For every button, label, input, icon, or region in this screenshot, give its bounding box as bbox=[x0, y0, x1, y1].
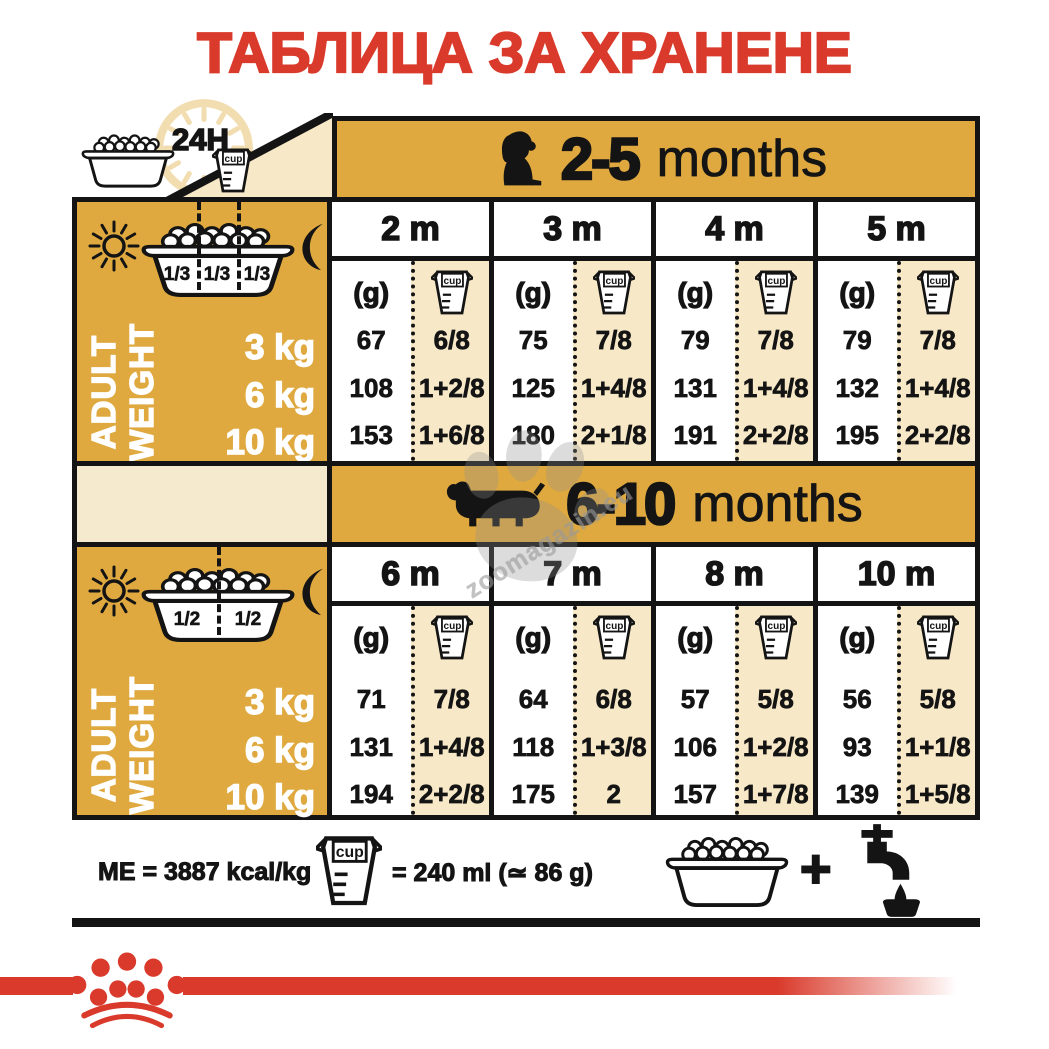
grams-value: 131 bbox=[332, 732, 411, 763]
cup-subcolumn: cup 7/8 1+4/8 2+2/8 bbox=[897, 261, 976, 461]
svg-text:cup: cup bbox=[605, 276, 623, 287]
cup-icon: cup bbox=[593, 612, 635, 662]
cup-subcolumn: cup 5/8 1+1/8 1+5/8 bbox=[897, 606, 976, 815]
grams-value: 106 bbox=[656, 732, 735, 763]
crown-logo bbox=[64, 944, 190, 1030]
cup-value: 1+4/8 bbox=[577, 373, 652, 404]
section2-spacer-cell bbox=[72, 461, 332, 547]
cup-value: 5/8 bbox=[739, 684, 814, 715]
cup-value: 6/8 bbox=[415, 325, 490, 356]
cup-value: 1+4/8 bbox=[901, 373, 976, 404]
grams-value: 125 bbox=[494, 373, 573, 404]
cup-value: 1+5/8 bbox=[901, 779, 976, 810]
cup-icon: cup bbox=[316, 830, 382, 910]
puppy-icon bbox=[485, 128, 543, 190]
grams-value: 180 bbox=[494, 420, 573, 451]
cup-subcolumn: cup 6/8 1+3/8 2 bbox=[573, 606, 652, 815]
portion-divider-line bbox=[217, 547, 221, 635]
months-word: months bbox=[657, 129, 828, 189]
grams-subcolumn: (g) 56 93 139 bbox=[818, 606, 897, 815]
grams-value: 75 bbox=[494, 325, 573, 356]
svg-text:cup: cup bbox=[336, 844, 364, 861]
grams-label: (g) bbox=[332, 622, 411, 654]
grams-value: 57 bbox=[656, 684, 735, 715]
dachshund-icon bbox=[444, 479, 548, 529]
cup-subcolumn: cup 7/8 1+4/8 2+2/8 bbox=[735, 261, 814, 461]
weight-row-label: 3 kg bbox=[195, 683, 315, 723]
grams-value: 64 bbox=[494, 684, 573, 715]
page-title: ТАБЛИЦА ЗА ХРАНЕНЕ bbox=[0, 20, 1049, 86]
cup-value: 1+3/8 bbox=[577, 732, 652, 763]
weight-row-label: 10 kg bbox=[195, 778, 315, 818]
metabolizable-energy-text: ME = 3887 kcal/kg bbox=[98, 858, 311, 887]
grams-label: (g) bbox=[818, 622, 897, 654]
grams-value: 139 bbox=[818, 779, 897, 810]
svg-text:cup: cup bbox=[929, 621, 947, 632]
grams-subcolumn: (g) 64 118 175 bbox=[494, 606, 573, 815]
cup-value: 2+2/8 bbox=[901, 420, 976, 451]
grams-value: 175 bbox=[494, 779, 573, 810]
cup-icon: cup bbox=[755, 612, 797, 662]
month-column-7m: 7 m (g) 64 118 175 cup 6/8 1+3/8 2 bbox=[489, 547, 651, 815]
portion-bowl-icon bbox=[139, 222, 297, 298]
month-column-4m: 4 m (g) 79 131 191 cup 7/8 1+4/8 2+2/8 bbox=[651, 202, 813, 461]
cup-value: 6/8 bbox=[577, 684, 652, 715]
bowl-fraction: 1/3 bbox=[237, 264, 277, 286]
grams-value: 195 bbox=[818, 420, 897, 451]
month-header: 7 m bbox=[494, 547, 651, 606]
cup-icon: cup bbox=[593, 267, 635, 317]
cup-value: 7/8 bbox=[739, 325, 814, 356]
grams-value: 71 bbox=[332, 684, 411, 715]
grams-subcolumn: (g) 57 106 157 bbox=[656, 606, 735, 815]
grams-value: 194 bbox=[332, 779, 411, 810]
grams-subcolumn: (g) 79 132 195 bbox=[818, 261, 897, 461]
grams-value: 118 bbox=[494, 732, 573, 763]
cup-icon: cup bbox=[431, 267, 473, 317]
brand-band-left bbox=[0, 977, 73, 995]
grams-label: (g) bbox=[332, 277, 411, 309]
section1-header: 2-5 months bbox=[332, 116, 980, 202]
svg-text:cup: cup bbox=[929, 276, 947, 287]
weight-row-label: 6 kg bbox=[195, 731, 315, 771]
grams-subcolumn: (g) 71 131 194 bbox=[332, 606, 411, 815]
grams-label: (g) bbox=[494, 277, 573, 309]
grams-value: 191 bbox=[656, 420, 735, 451]
month-header: 4 m bbox=[656, 202, 813, 261]
grams-label: (g) bbox=[818, 277, 897, 309]
cup-icon: cup bbox=[755, 267, 797, 317]
bowl-fraction: 1/3 bbox=[197, 264, 237, 286]
bowl-fraction: 1/3 bbox=[157, 264, 197, 286]
grams-subcolumn: (g) 67 108 153 bbox=[332, 261, 411, 461]
svg-text:cup: cup bbox=[767, 276, 785, 287]
grams-value: 108 bbox=[332, 373, 411, 404]
svg-text:cup: cup bbox=[605, 621, 623, 632]
section2-header: 6-10 months bbox=[332, 461, 980, 547]
month-column-8m: 8 m (g) 57 106 157 cup 5/8 1+2/8 1+7/8 bbox=[651, 547, 813, 815]
age-range: 6-10 bbox=[566, 471, 674, 538]
footer-row: ME = 3887 kcal/kg cup = 240 ml (≃ 86 g) … bbox=[72, 820, 980, 927]
cup-value: 2+2/8 bbox=[415, 779, 490, 810]
bowl-fraction: 1/2 bbox=[162, 609, 212, 631]
months-word: months bbox=[692, 474, 863, 534]
adult-weight-label: ADULTWEIGHT bbox=[85, 660, 165, 830]
month-column-3m: 3 m (g) 75 125 180 cup 7/8 1+4/8 2+1/8 bbox=[489, 202, 651, 461]
grams-value: 132 bbox=[818, 373, 897, 404]
grams-subcolumn: (g) 75 125 180 bbox=[494, 261, 573, 461]
grams-value: 131 bbox=[656, 373, 735, 404]
kibble-bowl-icon bbox=[80, 126, 176, 196]
svg-text:cup: cup bbox=[225, 154, 243, 165]
month-column-10m: 10 m (g) 56 93 139 cup 5/8 1+1/8 1+5/8 bbox=[813, 547, 975, 815]
grams-value: 93 bbox=[818, 732, 897, 763]
cup-value: 7/8 bbox=[577, 325, 652, 356]
cup-value: 1+7/8 bbox=[739, 779, 814, 810]
grams-value: 67 bbox=[332, 325, 411, 356]
cup-value: 1+1/8 bbox=[901, 732, 976, 763]
month-column-6m: 6 m (g) 71 131 194 cup 7/8 1+4/8 2+2/8 bbox=[332, 547, 489, 815]
grams-subcolumn: (g) 79 131 191 bbox=[656, 261, 735, 461]
grams-value: 79 bbox=[818, 325, 897, 356]
grams-value: 79 bbox=[656, 325, 735, 356]
cup-value: 5/8 bbox=[901, 684, 976, 715]
adult-weight-label: ADULTWEIGHT bbox=[85, 307, 165, 477]
month-header: 8 m bbox=[656, 547, 813, 606]
grams-value: 157 bbox=[656, 779, 735, 810]
svg-text:cup: cup bbox=[767, 621, 785, 632]
kibble-bowl-icon bbox=[660, 836, 794, 908]
water-tap-icon bbox=[838, 824, 920, 918]
cup-value: 1+2/8 bbox=[739, 732, 814, 763]
month-header: 5 m bbox=[818, 202, 975, 261]
cup-value: 7/8 bbox=[415, 684, 490, 715]
cup-subcolumn: cup 5/8 1+2/8 1+7/8 bbox=[735, 606, 814, 815]
weight-row-label: 10 kg bbox=[195, 423, 315, 463]
cup-icon: cup bbox=[917, 267, 959, 317]
grams-value: 153 bbox=[332, 420, 411, 451]
section2-left-panel: 1/2 1/2 ADULTWEIGHT 3 kg 6 kg 10 kg bbox=[72, 542, 332, 820]
cup-value: 1+2/8 bbox=[415, 373, 490, 404]
month-header: 2 m bbox=[332, 202, 489, 261]
month-column-5m: 5 m (g) 79 132 195 cup 7/8 1+4/8 2+2/8 bbox=[813, 202, 975, 461]
plus-sign: + bbox=[800, 838, 832, 900]
cup-subcolumn: cup 7/8 1+4/8 2+1/8 bbox=[573, 261, 652, 461]
cup-equivalence-text: = 240 ml (≃ 86 g) bbox=[392, 858, 593, 888]
cup-subcolumn: cup 7/8 1+4/8 2+2/8 bbox=[411, 606, 490, 815]
cup-value: 2+2/8 bbox=[739, 420, 814, 451]
cup-value: 2+1/8 bbox=[577, 420, 652, 451]
grams-value: 56 bbox=[818, 684, 897, 715]
grams-label: (g) bbox=[656, 622, 735, 654]
cup-value: 2 bbox=[577, 779, 652, 810]
cup-icon: cup bbox=[212, 144, 254, 196]
cup-value: 1+6/8 bbox=[415, 420, 490, 451]
sun-icon bbox=[85, 216, 143, 274]
bowl-fraction: 1/2 bbox=[223, 609, 273, 631]
cup-subcolumn: cup 6/8 1+2/8 1+6/8 bbox=[411, 261, 490, 461]
grams-label: (g) bbox=[656, 277, 735, 309]
cup-value: 1+4/8 bbox=[739, 373, 814, 404]
cup-value: 1+4/8 bbox=[415, 732, 490, 763]
section1-left-panel: 1/3 1/3 1/3 ADULTWEIGHT 3 kg 6 kg 10 kg bbox=[72, 197, 332, 466]
month-header: 6 m bbox=[332, 547, 489, 606]
section1-table: 2 m (g) 67 108 153 cup 6/8 1+2/8 1+6/8 3… bbox=[332, 197, 980, 466]
cup-icon: cup bbox=[917, 612, 959, 662]
section2-table: 6 m (g) 71 131 194 cup 7/8 1+4/8 2+2/8 7… bbox=[332, 542, 980, 820]
grams-label: (g) bbox=[494, 622, 573, 654]
svg-text:cup: cup bbox=[443, 276, 461, 287]
month-header: 3 m bbox=[494, 202, 651, 261]
sun-icon bbox=[85, 561, 143, 619]
svg-text:cup: cup bbox=[443, 621, 461, 632]
cup-value: 7/8 bbox=[901, 325, 976, 356]
month-header: 10 m bbox=[818, 547, 975, 606]
cup-icon: cup bbox=[431, 612, 473, 662]
age-range: 2-5 bbox=[561, 126, 639, 193]
brand-band-right bbox=[183, 977, 965, 995]
weight-row-label: 3 kg bbox=[195, 328, 315, 368]
month-column-2m: 2 m (g) 67 108 153 cup 6/8 1+2/8 1+6/8 bbox=[332, 202, 489, 461]
weight-row-label: 6 kg bbox=[195, 376, 315, 416]
